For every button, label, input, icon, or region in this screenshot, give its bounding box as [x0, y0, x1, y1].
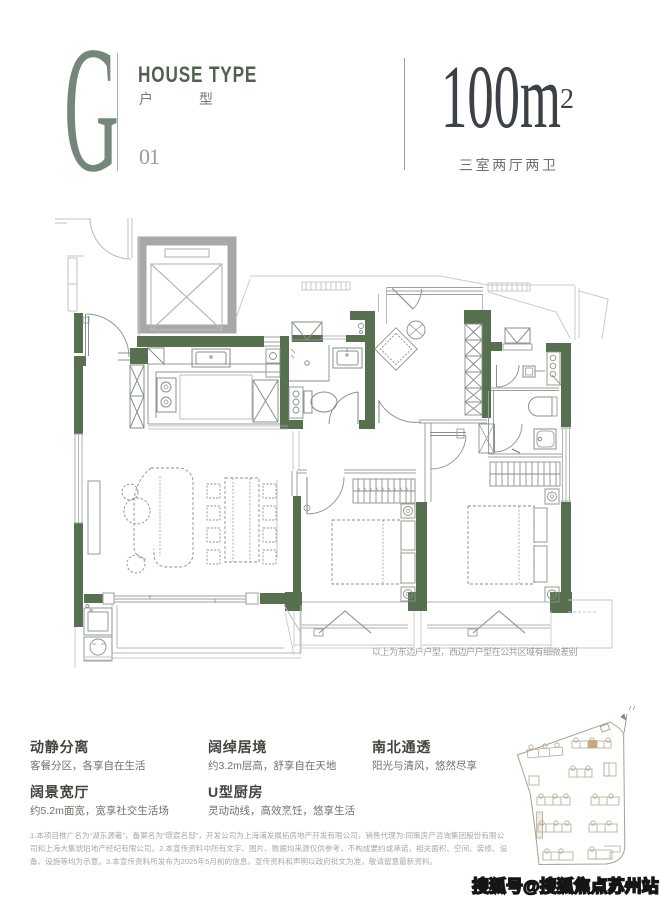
svg-text:以上为东边户户型，西边户户型在公共区域有细微差别: 以上为东边户户型，西边户户型在公共区域有细微差别	[372, 646, 578, 657]
